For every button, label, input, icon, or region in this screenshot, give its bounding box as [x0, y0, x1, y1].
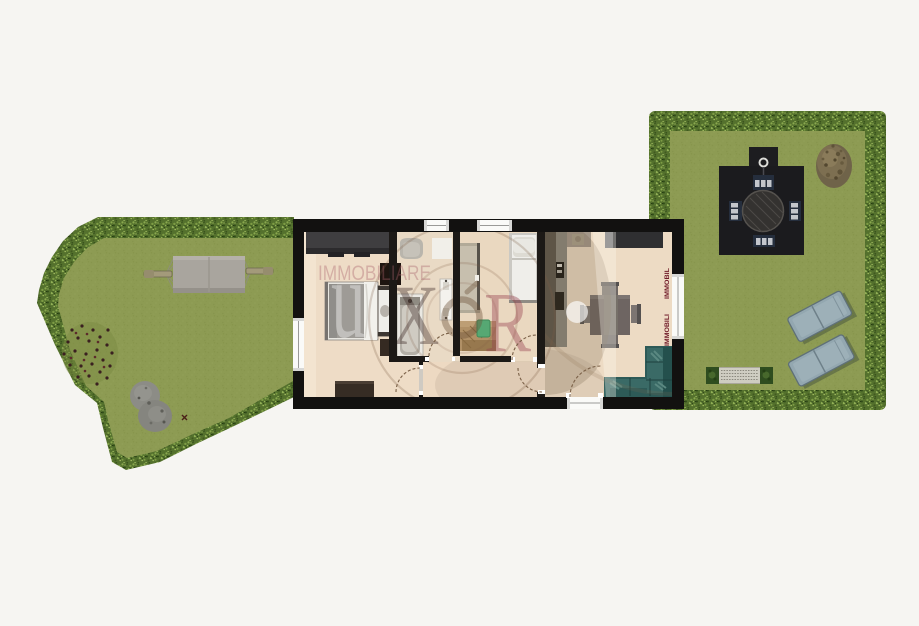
svg-text:IMMOBIL: IMMOBIL [665, 268, 671, 299]
svg-text:IMMOBILIARE: IMMOBILIARE [318, 262, 431, 285]
svg-text:u: u [331, 238, 366, 362]
svg-text:IMMOBILI: IMMOBILI [665, 314, 671, 346]
